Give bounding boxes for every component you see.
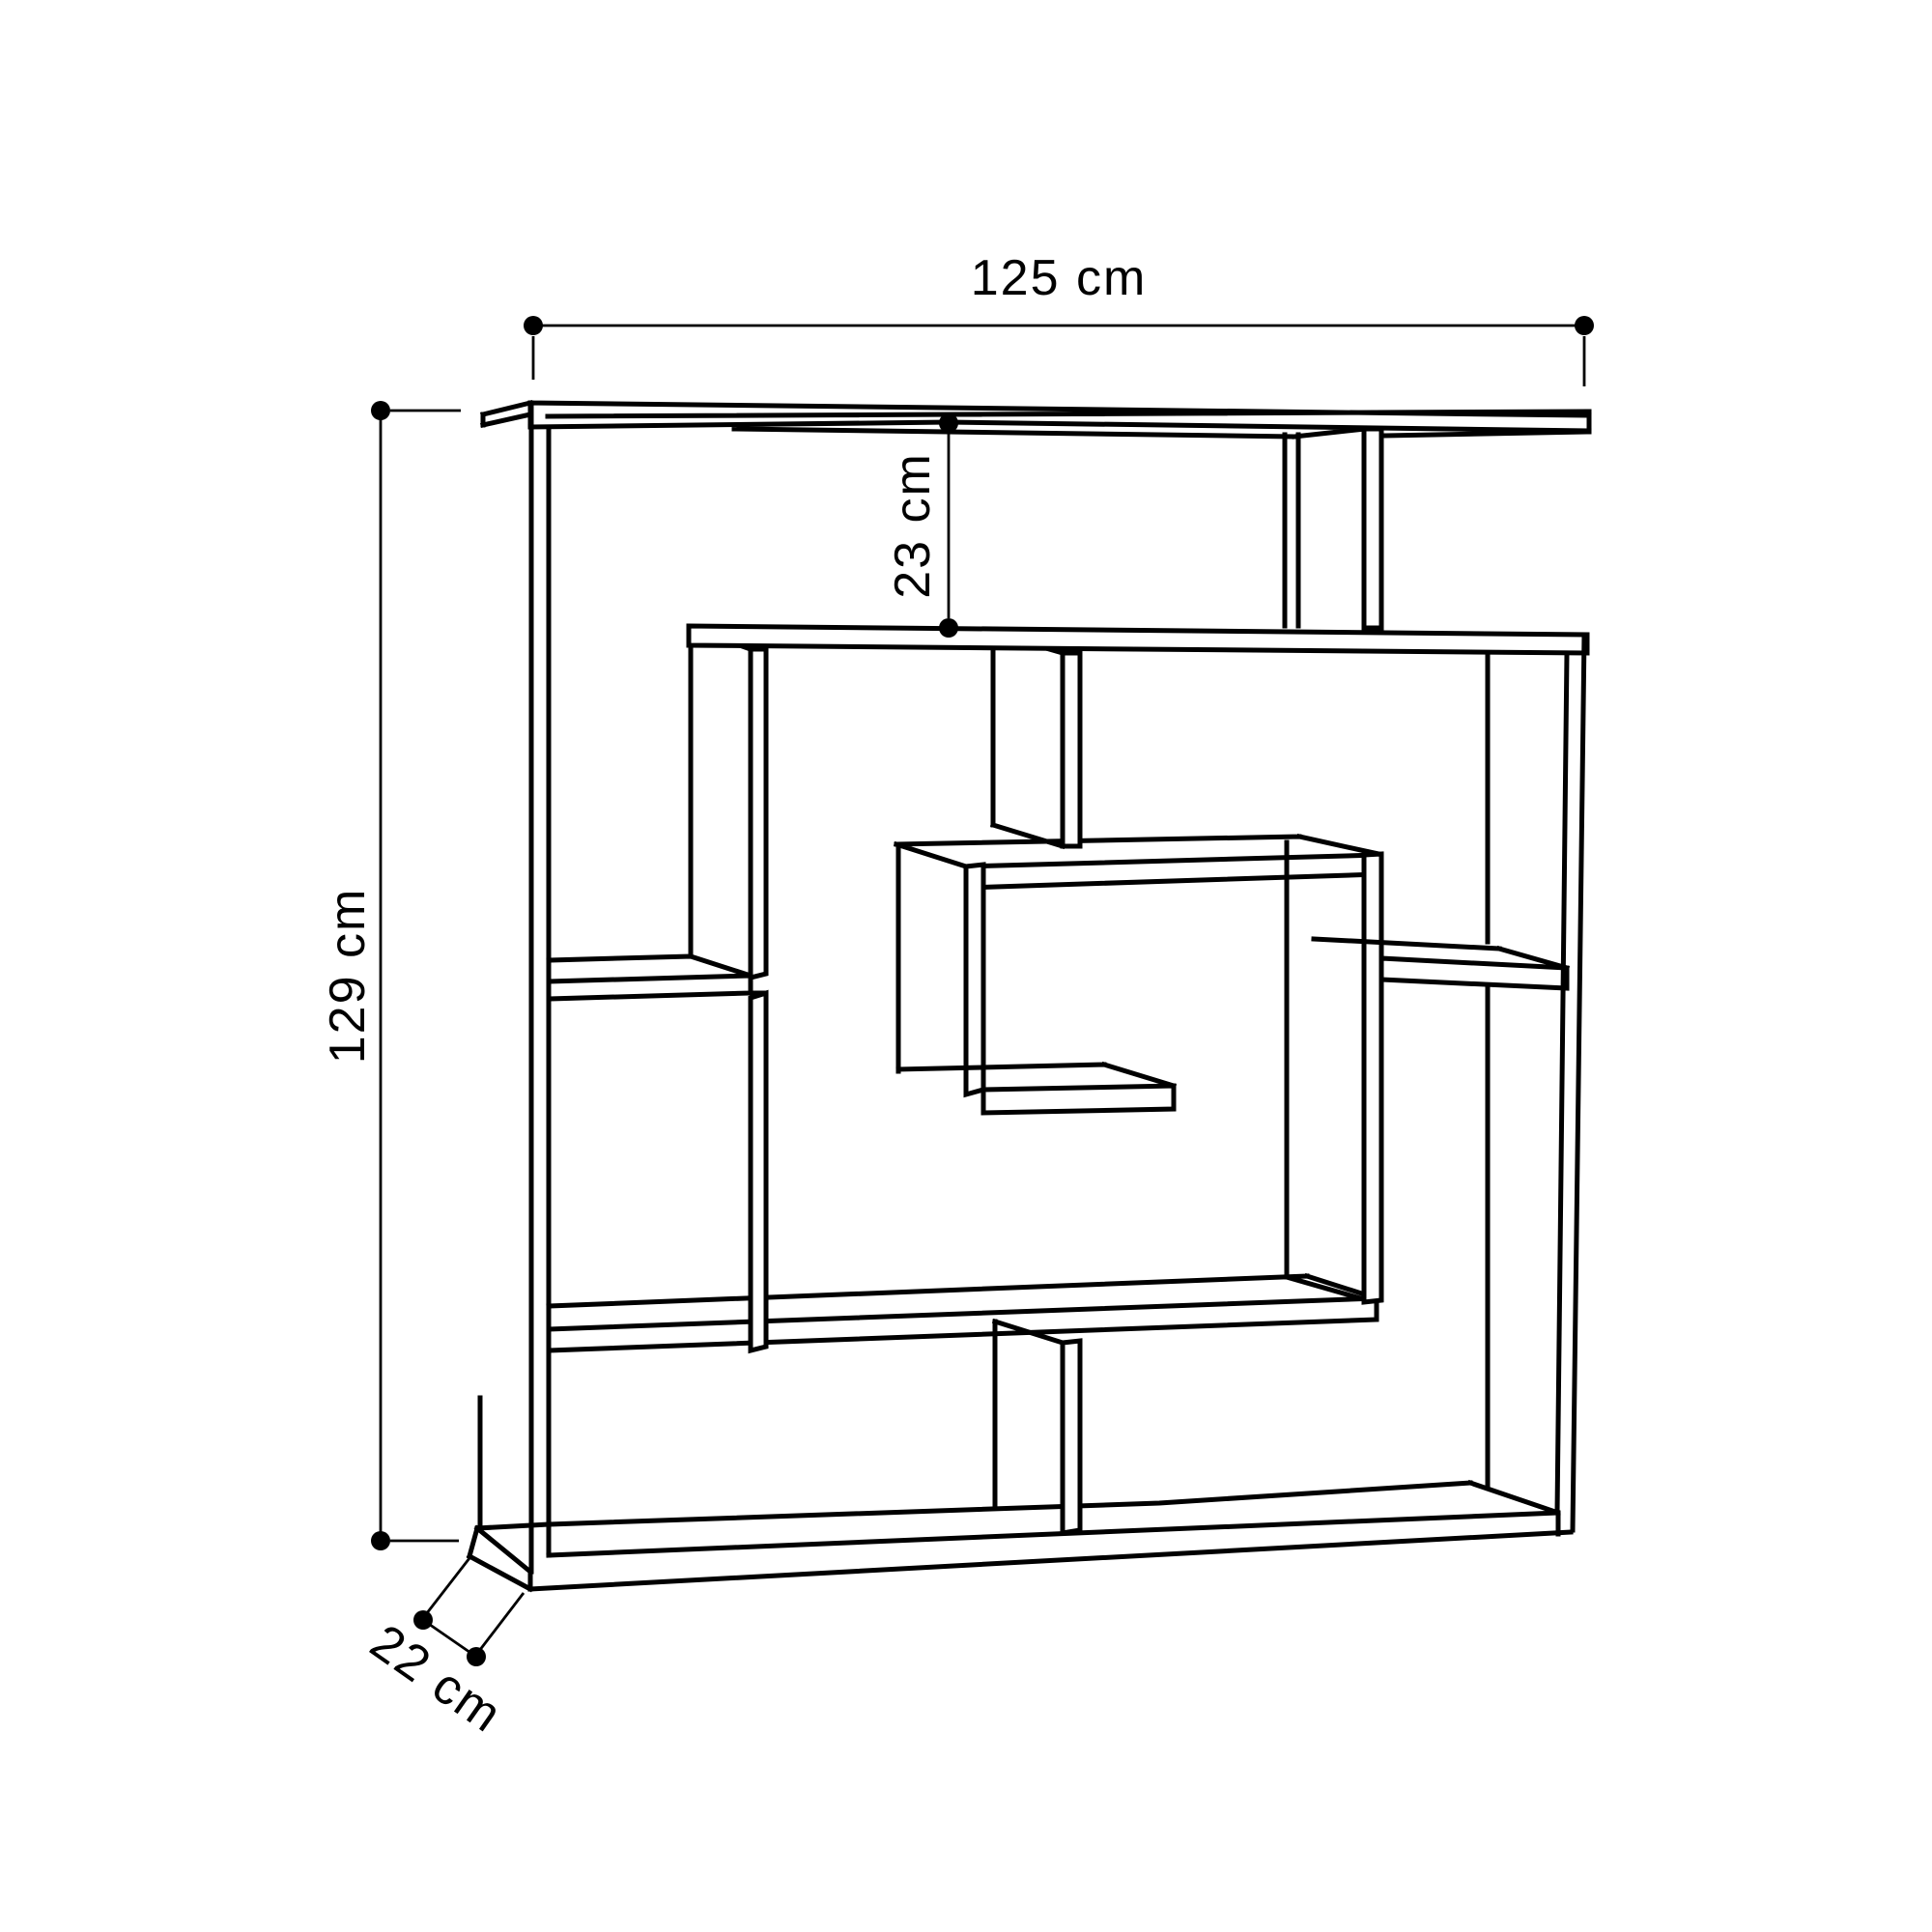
bottom-divider-back-edge	[995, 1321, 1063, 1507]
width-dimension-line	[533, 326, 1584, 386]
bottom-divider-wall	[995, 1321, 1080, 1533]
base-top-back-edge	[549, 1483, 1470, 1524]
width-endpoint-left	[524, 316, 543, 335]
mid-upper-wall-back-edge	[993, 633, 1063, 846]
maze-right-wall	[1287, 842, 1381, 1302]
depth-dimension: 22 cm	[360, 1558, 524, 1744]
mid-upper-wall	[993, 633, 1080, 846]
top-row-divider-front-face	[1364, 429, 1381, 628]
height-dimension-line	[381, 411, 461, 1541]
second-shelf-front-face	[689, 626, 1587, 653]
top-gap-endpoint-top	[939, 413, 958, 433]
left-center-wall-lower-face	[751, 993, 766, 1350]
bookcase-drawing	[469, 403, 1589, 1589]
mid-upper-wall-front-face	[1063, 653, 1080, 846]
height-dimension: 129 cm	[320, 401, 461, 1550]
lower-shelf-front-face	[549, 1298, 1377, 1350]
height-dimension-label: 129 cm	[320, 888, 376, 1065]
left-small-shelf	[549, 956, 766, 999]
depth-dimension-label: 22 cm	[360, 1614, 512, 1744]
base-front-bottom-edge	[530, 1532, 1571, 1589]
maze-top-shelf-front-face	[966, 855, 1378, 888]
depth-dimension-line	[423, 1558, 524, 1657]
left-side-panel	[480, 403, 549, 1572]
top-board	[483, 403, 1589, 437]
maze-inner-shelf	[898, 1065, 1174, 1113]
dimension-drawing-page: 125 cm 129 cm 23 cm 22 cm	[0, 0, 1932, 1932]
maze-right-wall-front-face	[1364, 854, 1381, 1302]
top-gap-dimension: 23 cm	[885, 413, 958, 638]
depth-endpoint-back	[413, 1610, 433, 1630]
height-endpoint-bottom	[371, 1531, 390, 1550]
top-row-divider	[1285, 429, 1381, 628]
top-row-divider-back-edges	[1285, 435, 1298, 626]
second-shelf	[689, 626, 1587, 653]
maze-left-wall	[898, 846, 983, 1094]
bookcase-dimension-diagram: 125 cm 129 cm 23 cm 22 cm	[0, 0, 1932, 1932]
left-small-shelf-back-edge	[549, 956, 751, 976]
base-left-wedge	[469, 1524, 549, 1589]
height-endpoint-top	[371, 401, 390, 420]
maze-right-wall-back-edge	[1287, 842, 1364, 1299]
right-side-panel-edges	[1488, 635, 1584, 1530]
depth-endpoint-front	[467, 1647, 486, 1666]
left-center-wall-back-edge	[691, 628, 751, 956]
width-dimension: 125 cm	[524, 250, 1594, 386]
top-gap-dimension-label: 23 cm	[885, 452, 941, 599]
top-board-edges	[483, 403, 1589, 437]
right-side-panel	[1488, 635, 1584, 1530]
lower-long-shelf	[549, 1276, 1377, 1350]
maze-left-wall-front-face	[966, 865, 983, 1094]
left-side-panel-edges	[480, 403, 549, 1572]
width-endpoint-right	[1575, 316, 1594, 335]
maze-inner-shelf-front-face	[983, 1086, 1174, 1113]
right-small-shelf	[1314, 939, 1567, 988]
bottom-divider-front-face	[1063, 1341, 1080, 1533]
maze-inner-shelf-back-edge	[898, 1065, 1174, 1086]
right-small-shelf-front-face	[1381, 958, 1567, 988]
base-board	[469, 1483, 1571, 1589]
left-small-shelf-front-face	[549, 976, 751, 999]
top-gap-endpoint-bottom	[939, 618, 958, 638]
width-dimension-label: 125 cm	[971, 250, 1148, 306]
left-center-wall-upper-face	[751, 649, 766, 978]
base-right-end	[1470, 1483, 1558, 1534]
